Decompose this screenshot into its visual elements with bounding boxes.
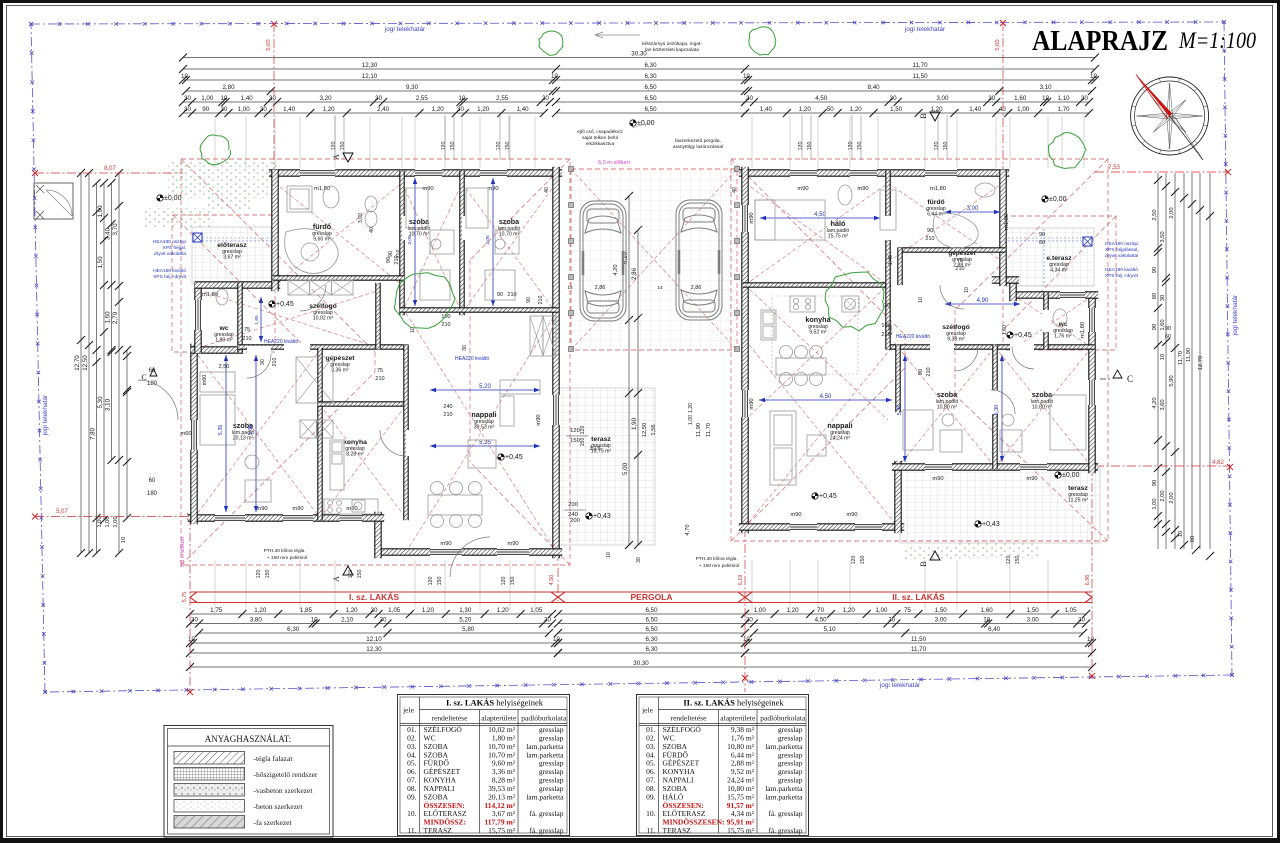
svg-text:1,85: 1,85 bbox=[300, 607, 313, 614]
svg-text:B: B bbox=[919, 113, 928, 118]
svg-text:10: 10 bbox=[1087, 636, 1094, 643]
svg-text:TERASZ: TERASZ bbox=[424, 826, 453, 835]
svg-text:m1,80: m1,80 bbox=[1004, 214, 1010, 230]
svg-text:30: 30 bbox=[191, 617, 198, 624]
svg-text:80: 80 bbox=[1190, 536, 1196, 542]
svg-text:210: 210 bbox=[375, 376, 384, 382]
svg-text:70: 70 bbox=[817, 607, 824, 614]
svg-text:150: 150 bbox=[943, 142, 949, 151]
svg-text:6,30: 6,30 bbox=[645, 636, 658, 643]
svg-text:A: A bbox=[332, 154, 341, 160]
svg-text:30: 30 bbox=[375, 95, 382, 102]
svg-text:XPS héj.+dryvit: XPS héj.+dryvit bbox=[153, 274, 187, 280]
svg-text:m90: m90 bbox=[790, 512, 801, 518]
svg-text:1,20: 1,20 bbox=[850, 106, 863, 113]
svg-text:1,60: 1,60 bbox=[981, 607, 994, 614]
svg-text:-tégla falazat: -tégla falazat bbox=[254, 754, 294, 763]
svg-text:padlóburkolata: padlóburkolata bbox=[521, 714, 567, 723]
svg-text:4,70: 4,70 bbox=[685, 524, 691, 535]
svg-text:1,20: 1,20 bbox=[254, 607, 267, 614]
svg-text:1,50: 1,50 bbox=[935, 607, 948, 614]
svg-text:jogi telekhatár: jogi telekhatár bbox=[384, 26, 426, 33]
svg-text:1,20: 1,20 bbox=[497, 607, 510, 614]
svg-text:4,50: 4,50 bbox=[549, 575, 555, 586]
svg-text:háló: háló bbox=[831, 219, 846, 228]
svg-text:m90: m90 bbox=[292, 506, 303, 512]
svg-text:5,19: 5,19 bbox=[738, 575, 744, 586]
svg-text:5,00: 5,00 bbox=[622, 462, 629, 475]
svg-text:30: 30 bbox=[888, 617, 895, 624]
svg-text:ANYAGHASZNÁLAT:: ANYAGHASZNÁLAT: bbox=[205, 734, 292, 744]
svg-text:1,20: 1,20 bbox=[432, 106, 445, 113]
svg-text:5,75: 5,75 bbox=[182, 592, 188, 603]
svg-text:6,50: 6,50 bbox=[645, 607, 658, 614]
svg-text:1,76 m²: 1,76 m² bbox=[1054, 334, 1072, 340]
svg-text:konyha: konyha bbox=[343, 439, 367, 446]
svg-text:1,20: 1,20 bbox=[688, 403, 694, 413]
svg-text:fá. gresslap: fá. gresslap bbox=[529, 809, 563, 818]
svg-text:6,30: 6,30 bbox=[287, 626, 300, 633]
svg-text:120: 120 bbox=[1006, 556, 1012, 565]
svg-text:80: 80 bbox=[1152, 293, 1158, 299]
svg-text:1,20: 1,20 bbox=[799, 106, 812, 113]
svg-text:10: 10 bbox=[121, 537, 127, 543]
svg-text:lan közterületi kapcsolata: lan közterületi kapcsolata bbox=[645, 47, 699, 53]
svg-text:6,50: 6,50 bbox=[644, 84, 657, 91]
svg-text:120: 120 bbox=[441, 142, 447, 151]
svg-text:m1,80: m1,80 bbox=[930, 186, 946, 192]
svg-text:m90: m90 bbox=[749, 212, 755, 223]
svg-text:2,86: 2,86 bbox=[691, 285, 702, 291]
svg-text:10.: 10. bbox=[646, 809, 656, 818]
svg-text:1,00: 1,00 bbox=[113, 516, 119, 527]
svg-text:PTH.30 klíma tégla: PTH.30 klíma tégla bbox=[264, 548, 305, 554]
svg-text:terasz: terasz bbox=[591, 436, 611, 443]
svg-text:2,55: 2,55 bbox=[416, 95, 429, 102]
svg-text:120: 120 bbox=[501, 577, 507, 586]
svg-text:9,30: 9,30 bbox=[406, 84, 419, 91]
svg-text:m90: m90 bbox=[846, 512, 857, 518]
svg-text:m90: m90 bbox=[507, 541, 518, 547]
svg-text:2,50: 2,50 bbox=[219, 364, 230, 370]
svg-text:90: 90 bbox=[497, 292, 503, 298]
svg-text:1,50: 1,50 bbox=[890, 106, 903, 113]
svg-text:3,10: 3,10 bbox=[1040, 84, 1053, 91]
svg-text:30: 30 bbox=[457, 106, 464, 113]
svg-text:m90: m90 bbox=[797, 186, 808, 192]
svg-text:30: 30 bbox=[890, 95, 897, 102]
svg-text:120: 120 bbox=[496, 142, 502, 151]
svg-text:11.: 11. bbox=[407, 826, 416, 835]
svg-text:10: 10 bbox=[188, 636, 195, 643]
svg-text:HEA180 kiváltó: HEA180 kiváltó bbox=[153, 268, 186, 274]
svg-text:1,40: 1,40 bbox=[517, 106, 530, 113]
svg-text:+0,43: +0,43 bbox=[593, 513, 611, 520]
svg-text:150: 150 bbox=[505, 142, 511, 151]
svg-text:210: 210 bbox=[926, 367, 932, 376]
svg-text:14: 14 bbox=[657, 285, 663, 291]
svg-text:5,00: 5,00 bbox=[266, 39, 272, 50]
svg-text:150: 150 bbox=[437, 577, 443, 586]
svg-text:3,00: 3,00 bbox=[935, 617, 948, 624]
svg-text:1,00: 1,00 bbox=[754, 607, 767, 614]
svg-text:10: 10 bbox=[1160, 354, 1166, 360]
svg-text:3,05: 3,05 bbox=[485, 235, 491, 245]
svg-text:210: 210 bbox=[443, 412, 452, 418]
svg-text:11.: 11. bbox=[646, 826, 655, 835]
svg-text:40: 40 bbox=[369, 227, 375, 233]
svg-text:30: 30 bbox=[746, 617, 753, 624]
svg-text:6,50: 6,50 bbox=[644, 106, 657, 113]
svg-text:5,30: 5,30 bbox=[97, 396, 104, 409]
svg-text:24,24 m²: 24,24 m² bbox=[830, 436, 851, 442]
svg-text:3,10: 3,10 bbox=[105, 398, 112, 411]
svg-text:200: 200 bbox=[570, 518, 580, 524]
svg-text:30: 30 bbox=[184, 106, 191, 113]
svg-text:210: 210 bbox=[396, 250, 402, 259]
svg-text:4,90: 4,90 bbox=[977, 298, 989, 304]
svg-text:1,50: 1,50 bbox=[1027, 607, 1040, 614]
svg-text:10,70 m²: 10,70 m² bbox=[499, 232, 520, 238]
svg-text:alapterülete: alapterülete bbox=[481, 714, 517, 723]
svg-text:6,30: 6,30 bbox=[645, 646, 658, 653]
svg-text:m90: m90 bbox=[536, 414, 542, 425]
svg-text:40: 40 bbox=[999, 106, 1006, 113]
svg-text:240: 240 bbox=[568, 512, 578, 518]
svg-text:30: 30 bbox=[184, 95, 191, 102]
svg-text:2,80: 2,80 bbox=[222, 84, 235, 91]
svg-text:30: 30 bbox=[544, 617, 551, 624]
svg-text:30: 30 bbox=[636, 557, 642, 563]
svg-text:240: 240 bbox=[443, 404, 452, 410]
svg-text:szélfogó: szélfogó bbox=[942, 324, 970, 331]
svg-text:30: 30 bbox=[220, 106, 227, 113]
svg-text:1,05: 1,05 bbox=[530, 607, 543, 614]
svg-text:30: 30 bbox=[380, 617, 387, 624]
svg-text:1,60: 1,60 bbox=[105, 311, 112, 324]
svg-text:40: 40 bbox=[732, 187, 738, 193]
svg-text:3,36 m²: 3,36 m² bbox=[331, 368, 349, 374]
svg-text:75: 75 bbox=[244, 327, 250, 333]
svg-text:9,52 m²: 9,52 m² bbox=[809, 330, 827, 336]
svg-text:2,40: 2,40 bbox=[377, 106, 390, 113]
svg-text:75: 75 bbox=[377, 368, 383, 374]
svg-text:6,30: 6,30 bbox=[644, 62, 657, 69]
svg-text:dryvit vakolattal: dryvit vakolattal bbox=[1105, 253, 1138, 259]
svg-text:14: 14 bbox=[567, 285, 573, 291]
svg-text:6,50: 6,50 bbox=[645, 626, 658, 633]
svg-text:120: 120 bbox=[798, 142, 804, 151]
svg-text:90: 90 bbox=[1152, 324, 1158, 330]
svg-text:5,35: 5,35 bbox=[897, 405, 903, 416]
svg-text:30: 30 bbox=[269, 95, 276, 102]
svg-text:10: 10 bbox=[311, 617, 318, 624]
svg-text:11,90: 11,90 bbox=[696, 423, 702, 437]
svg-text:20,13 m²: 20,13 m² bbox=[233, 436, 254, 442]
svg-text:120: 120 bbox=[256, 570, 262, 579]
svg-text:75: 75 bbox=[957, 258, 963, 264]
svg-text:10: 10 bbox=[964, 287, 970, 293]
svg-text:5,80: 5,80 bbox=[462, 626, 475, 633]
svg-text:5,90: 5,90 bbox=[1169, 375, 1175, 386]
svg-text:10,80 m²: 10,80 m² bbox=[937, 405, 958, 411]
svg-text:15,75 m²: 15,75 m² bbox=[488, 826, 516, 835]
svg-text:+0,45: +0,45 bbox=[505, 454, 523, 461]
svg-text:150: 150 bbox=[807, 142, 813, 151]
svg-text:TERASZ: TERASZ bbox=[663, 826, 692, 835]
svg-text:90: 90 bbox=[1152, 480, 1158, 486]
svg-text:3,00: 3,00 bbox=[1027, 617, 1040, 624]
svg-text:150: 150 bbox=[857, 142, 863, 151]
svg-text:-hőszigetelő rendszer: -hőszigetelő rendszer bbox=[254, 770, 318, 779]
svg-text:12,70: 12,70 bbox=[1198, 356, 1204, 371]
svg-text:A: A bbox=[332, 576, 341, 582]
svg-text:10: 10 bbox=[743, 73, 750, 80]
svg-text:2,55: 2,55 bbox=[496, 95, 509, 102]
svg-text:9,60 m²: 9,60 m² bbox=[313, 237, 331, 243]
svg-text:3,70: 3,70 bbox=[112, 223, 119, 236]
svg-text:3,00: 3,00 bbox=[358, 213, 364, 223]
svg-text:12,10: 12,10 bbox=[366, 636, 382, 643]
svg-text:1,30: 1,30 bbox=[459, 607, 472, 614]
svg-text:15,75 m²: 15,75 m² bbox=[727, 826, 755, 835]
svg-text:210: 210 bbox=[242, 336, 251, 342]
svg-text:1,40: 1,40 bbox=[888, 255, 894, 265]
svg-text:10: 10 bbox=[606, 552, 612, 558]
svg-text:10: 10 bbox=[181, 73, 188, 80]
svg-text:120: 120 bbox=[331, 142, 337, 151]
svg-text:120: 120 bbox=[934, 142, 940, 151]
svg-text:1,10: 1,10 bbox=[1058, 95, 1071, 102]
svg-text:előterasz: előterasz bbox=[217, 242, 247, 249]
svg-text:3,80: 3,80 bbox=[250, 617, 263, 624]
svg-text:-vasbeton szerkezet: -vasbeton szerkezet bbox=[254, 786, 314, 795]
svg-text:m60: m60 bbox=[180, 431, 191, 437]
svg-text:HEA180 oszlop: HEA180 oszlop bbox=[1105, 241, 1138, 247]
svg-text:2,50: 2,50 bbox=[1152, 209, 1158, 220]
svg-text:6,40: 6,40 bbox=[988, 626, 1001, 633]
svg-text:e.terasz: e.terasz bbox=[1046, 255, 1072, 262]
svg-text:90: 90 bbox=[1165, 326, 1171, 332]
svg-text:5,25: 5,25 bbox=[479, 440, 491, 446]
svg-text:M=1:100: M=1:100 bbox=[1178, 28, 1256, 53]
svg-text:120: 120 bbox=[570, 428, 580, 434]
svg-text:150: 150 bbox=[357, 570, 363, 579]
svg-text:aranytölgy lazúrozással: aranytölgy lazúrozással bbox=[673, 144, 723, 150]
svg-text:4,50: 4,50 bbox=[820, 394, 832, 400]
svg-text:1,70: 1,70 bbox=[1058, 106, 1071, 113]
svg-text:15,75 m²: 15,75 m² bbox=[591, 449, 612, 455]
svg-text:150: 150 bbox=[570, 438, 580, 444]
svg-text:10: 10 bbox=[918, 297, 924, 303]
svg-text:6,50: 6,50 bbox=[644, 95, 657, 102]
svg-text:±0,00: ±0,00 bbox=[1062, 472, 1080, 479]
svg-text:m90: m90 bbox=[932, 476, 943, 482]
svg-text:150: 150 bbox=[265, 570, 271, 579]
svg-text:HEA220 kiváltó: HEA220 kiváltó bbox=[264, 339, 298, 345]
svg-text:8,28 m²: 8,28 m² bbox=[346, 452, 364, 458]
svg-text:3,00: 3,00 bbox=[967, 206, 979, 212]
svg-text:12,50: 12,50 bbox=[82, 355, 89, 371]
svg-text:1,40: 1,40 bbox=[969, 106, 982, 113]
svg-text:75: 75 bbox=[904, 607, 911, 614]
svg-text:1,00: 1,00 bbox=[875, 607, 888, 614]
svg-text:szélfogó: szélfogó bbox=[309, 303, 337, 310]
svg-text:12,70: 12,70 bbox=[74, 355, 81, 371]
svg-text:+ 150 mm polistirol: + 150 mm polistirol bbox=[699, 563, 739, 569]
svg-text:XPS héjplással,: XPS héjplással, bbox=[1105, 247, 1139, 253]
svg-text:11,50: 11,50 bbox=[912, 73, 928, 80]
svg-text:+0,45: +0,45 bbox=[276, 301, 294, 308]
svg-text:2,10: 2,10 bbox=[341, 617, 354, 624]
svg-text:5,20: 5,20 bbox=[479, 384, 491, 390]
svg-text:5,0 m előkert: 5,0 m előkert bbox=[598, 160, 630, 166]
svg-text:szoba: szoba bbox=[937, 390, 958, 399]
svg-text:60: 60 bbox=[149, 478, 156, 484]
svg-text:90: 90 bbox=[918, 369, 924, 375]
svg-text:fá. gresslap: fá. gresslap bbox=[529, 826, 563, 835]
svg-text:m90: m90 bbox=[857, 186, 868, 192]
svg-text:09.: 09. bbox=[646, 792, 656, 801]
svg-text:2,86: 2,86 bbox=[595, 285, 606, 291]
svg-text:jele: jele bbox=[402, 706, 414, 715]
svg-text:5,30: 5,30 bbox=[248, 425, 254, 436]
svg-text:ALAPRAJZ: ALAPRAJZ bbox=[1032, 25, 1168, 57]
svg-text:1,20: 1,20 bbox=[346, 607, 359, 614]
svg-text:120: 120 bbox=[428, 577, 434, 586]
svg-text:3,60: 3,60 bbox=[1160, 399, 1166, 410]
svg-text:180: 180 bbox=[147, 491, 158, 497]
svg-text:5,00: 5,00 bbox=[995, 39, 1001, 50]
svg-text:kétszárnyú úszókapu, ingat-: kétszárnyú úszókapu, ingat- bbox=[642, 41, 702, 47]
svg-text:nappali: nappali bbox=[827, 421, 852, 430]
svg-text:fá. gresslap: fá. gresslap bbox=[768, 809, 802, 818]
svg-text:40: 40 bbox=[544, 187, 550, 193]
svg-text:HEA180 kiváltó: HEA180 kiváltó bbox=[1105, 267, 1138, 273]
svg-text:1,50: 1,50 bbox=[97, 256, 104, 269]
svg-text:4,50: 4,50 bbox=[815, 617, 828, 624]
svg-text:6,96: 6,96 bbox=[1085, 575, 1091, 586]
svg-text:210: 210 bbox=[272, 358, 278, 367]
svg-text:30: 30 bbox=[1081, 95, 1088, 102]
svg-text:saját telken belül: saját telken belül bbox=[582, 135, 618, 141]
svg-text:rendeltetése: rendeltetése bbox=[671, 714, 707, 723]
svg-text:9,38 m²: 9,38 m² bbox=[947, 337, 965, 343]
svg-text:5,30: 5,30 bbox=[994, 405, 1000, 416]
svg-text:1,60: 1,60 bbox=[1014, 95, 1027, 102]
svg-text:1,80 m²: 1,80 m² bbox=[215, 338, 233, 344]
svg-text:210: 210 bbox=[538, 296, 544, 305]
svg-text:11,70: 11,70 bbox=[706, 423, 712, 437]
svg-text:m90: m90 bbox=[256, 506, 267, 512]
svg-text:4,50: 4,50 bbox=[815, 95, 828, 102]
svg-text:10: 10 bbox=[1042, 95, 1049, 102]
svg-text:II. sz. LAKÁS: II. sz. LAKÁS bbox=[892, 592, 945, 602]
svg-text:6,50: 6,50 bbox=[645, 617, 658, 624]
svg-text:1,20: 1,20 bbox=[477, 106, 490, 113]
svg-text:1,00: 1,00 bbox=[238, 106, 251, 113]
svg-text:1,75: 1,75 bbox=[210, 607, 223, 614]
svg-text:-fa szerkezet: -fa szerkezet bbox=[254, 818, 293, 827]
svg-text:jogi telekhatár: jogi telekhatár bbox=[904, 26, 946, 33]
svg-text:4,34 m²: 4,34 m² bbox=[1050, 268, 1068, 274]
svg-text:ejtő cső, csapadékvíz: ejtő cső, csapadékvíz bbox=[577, 129, 623, 135]
svg-text:+0,45: +0,45 bbox=[819, 493, 837, 500]
svg-text:m60: m60 bbox=[202, 375, 208, 386]
svg-text:210: 210 bbox=[441, 322, 450, 328]
svg-text:150: 150 bbox=[580, 438, 586, 447]
svg-text:10: 10 bbox=[551, 73, 558, 80]
svg-text:60: 60 bbox=[1165, 334, 1171, 340]
svg-text:1,40: 1,40 bbox=[760, 106, 773, 113]
svg-text:3,00: 3,00 bbox=[936, 95, 949, 102]
svg-text:gépészet: gépészet bbox=[948, 250, 976, 257]
svg-text:m90: m90 bbox=[1026, 476, 1037, 482]
svg-text:dryvit vakolatta: dryvit vakolatta bbox=[154, 251, 186, 257]
svg-text:150: 150 bbox=[860, 556, 866, 565]
svg-text:1,20: 1,20 bbox=[323, 106, 336, 113]
svg-text:nappali: nappali bbox=[471, 410, 496, 419]
svg-text:90: 90 bbox=[388, 251, 394, 257]
svg-text:jogi telekhatár: jogi telekhatár bbox=[879, 682, 921, 689]
svg-text:10: 10 bbox=[220, 95, 227, 102]
svg-text:1,20: 1,20 bbox=[422, 607, 435, 614]
svg-text:120: 120 bbox=[580, 426, 586, 435]
svg-text:60: 60 bbox=[1039, 240, 1045, 246]
svg-text:+ 150 mm polistirol: + 150 mm polistirol bbox=[267, 555, 307, 561]
svg-text:200: 200 bbox=[568, 502, 578, 508]
svg-text:90: 90 bbox=[202, 106, 209, 113]
svg-text:11,90: 11,90 bbox=[1186, 348, 1192, 362]
svg-text:-beton szerkezet: -beton szerkezet bbox=[254, 802, 304, 811]
svg-text:1,00: 1,00 bbox=[97, 516, 103, 527]
svg-text:3,40: 3,40 bbox=[105, 227, 112, 240]
svg-text:lam.parketta: lam.parketta bbox=[765, 792, 803, 801]
svg-text:30: 30 bbox=[884, 303, 890, 309]
svg-text:120: 120 bbox=[851, 556, 857, 565]
svg-text:7,53: 7,53 bbox=[1108, 165, 1120, 171]
svg-text:1,00: 1,00 bbox=[1017, 106, 1030, 113]
svg-text:15,75 m²: 15,75 m² bbox=[828, 234, 849, 240]
svg-text:30: 30 bbox=[371, 607, 378, 614]
svg-text:1,60: 1,60 bbox=[888, 325, 894, 335]
svg-text:1,00: 1,00 bbox=[688, 415, 694, 425]
svg-text:±0,00: ±0,00 bbox=[164, 195, 182, 202]
svg-text:150: 150 bbox=[1015, 556, 1021, 565]
svg-text:2,00: 2,00 bbox=[1160, 490, 1166, 501]
svg-text:fürdő: fürdő bbox=[313, 222, 332, 231]
svg-text:12,30: 12,30 bbox=[366, 646, 382, 653]
svg-text:terasz: terasz bbox=[1068, 485, 1088, 492]
svg-text:11,25 m²: 11,25 m² bbox=[1068, 498, 1088, 504]
svg-text:150: 150 bbox=[510, 577, 516, 586]
svg-text:8,07: 8,07 bbox=[104, 166, 116, 172]
svg-text:5,20: 5,20 bbox=[459, 617, 472, 624]
svg-text:m90: m90 bbox=[440, 541, 451, 547]
svg-text:10: 10 bbox=[983, 617, 990, 624]
svg-text:12,10: 12,10 bbox=[362, 73, 378, 80]
svg-text:1,60: 1,60 bbox=[1002, 325, 1008, 335]
svg-text:jele: jele bbox=[641, 706, 653, 715]
svg-text:50: 50 bbox=[827, 106, 834, 113]
svg-text:90: 90 bbox=[260, 359, 266, 365]
svg-text:210: 210 bbox=[925, 236, 934, 242]
svg-text:+0,45: +0,45 bbox=[1014, 332, 1032, 339]
svg-text:1,00: 1,00 bbox=[201, 95, 214, 102]
svg-text:1,20: 1,20 bbox=[843, 607, 856, 614]
svg-text:B: B bbox=[919, 561, 928, 566]
svg-text:10,80 m²: 10,80 m² bbox=[1032, 405, 1053, 411]
